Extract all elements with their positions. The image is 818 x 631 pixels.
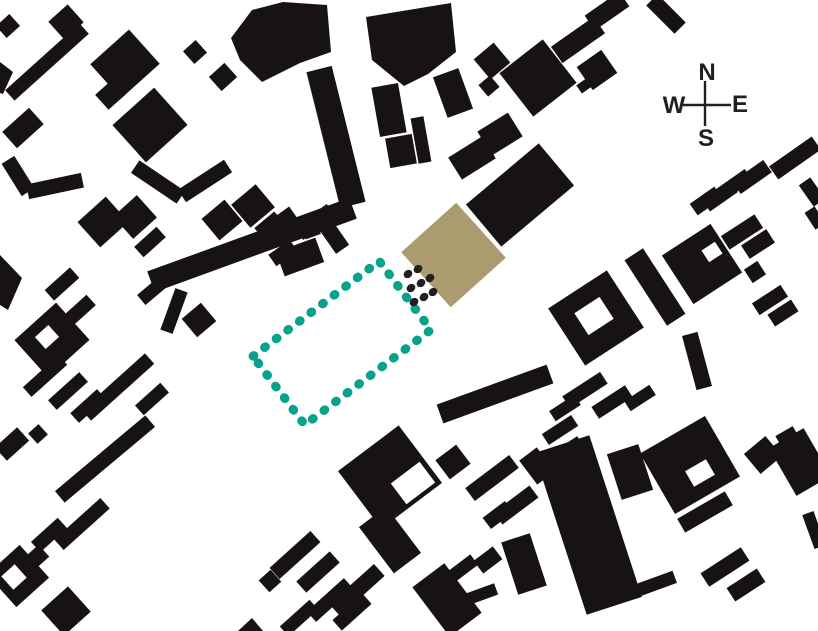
building-footprint: [306, 66, 365, 208]
building-footprint: [183, 40, 207, 64]
building-footprint: [0, 427, 29, 460]
building-footprint: [465, 455, 519, 501]
figure-ground-site-plan: N E S W: [0, 0, 818, 631]
building-footprint: [478, 75, 499, 96]
connector-dot: [405, 282, 417, 294]
building-footprint: [0, 14, 20, 38]
building-footprint: [2, 108, 43, 148]
building-footprint: [799, 177, 818, 206]
building-footprint: [26, 173, 84, 199]
building-footprint: [501, 533, 547, 595]
building-footprint: [41, 586, 91, 631]
building-footprint: [633, 571, 677, 598]
building-footprint: [238, 618, 263, 631]
building-footprint: [769, 137, 818, 180]
building-footprint: [160, 288, 187, 334]
building-footprint: [0, 255, 22, 310]
building-footprint: [435, 445, 470, 480]
building-footprint: [727, 568, 766, 601]
compass-east-label: E: [732, 91, 748, 118]
connector-dot: [402, 268, 414, 280]
compass-south-label: S: [698, 125, 714, 152]
building-footprint: [45, 267, 80, 300]
site-boundary-dashed-outline: [253, 261, 431, 425]
building-footprint: [55, 415, 155, 502]
building-footprint: [135, 383, 169, 415]
building-footprint: [209, 63, 237, 91]
site-boundary-rect: [253, 261, 431, 425]
building-footprint: [5, 23, 89, 100]
building-footprint: [371, 83, 406, 137]
building-footprints: [0, 0, 818, 631]
building-footprint: [744, 261, 766, 283]
building-footprint: [359, 507, 421, 574]
building-footprint: [131, 160, 185, 203]
building-footprint: [385, 134, 417, 168]
building-footprint: [466, 583, 498, 605]
connector-dot: [418, 291, 430, 303]
building-footprint: [28, 424, 48, 444]
site-plan-canvas: N E S W: [0, 0, 818, 631]
building-footprint: [805, 206, 818, 229]
compass-north-label: N: [698, 59, 715, 86]
building-footprint: [802, 511, 818, 549]
compass-cross-icon: [683, 81, 731, 126]
building-footprint: [366, 3, 456, 86]
building-footprint: [437, 365, 554, 424]
building-footprint: [646, 0, 686, 34]
building-footprint: [112, 88, 187, 163]
building-footprint: [90, 30, 159, 99]
building-footprint: [474, 546, 503, 573]
building-footprint: [433, 68, 473, 118]
compass-rose: N E S W: [663, 59, 748, 152]
compass-west-label: W: [663, 92, 686, 119]
building-footprint: [178, 160, 232, 203]
building-footprint: [682, 332, 712, 390]
building-footprint: [182, 303, 217, 337]
